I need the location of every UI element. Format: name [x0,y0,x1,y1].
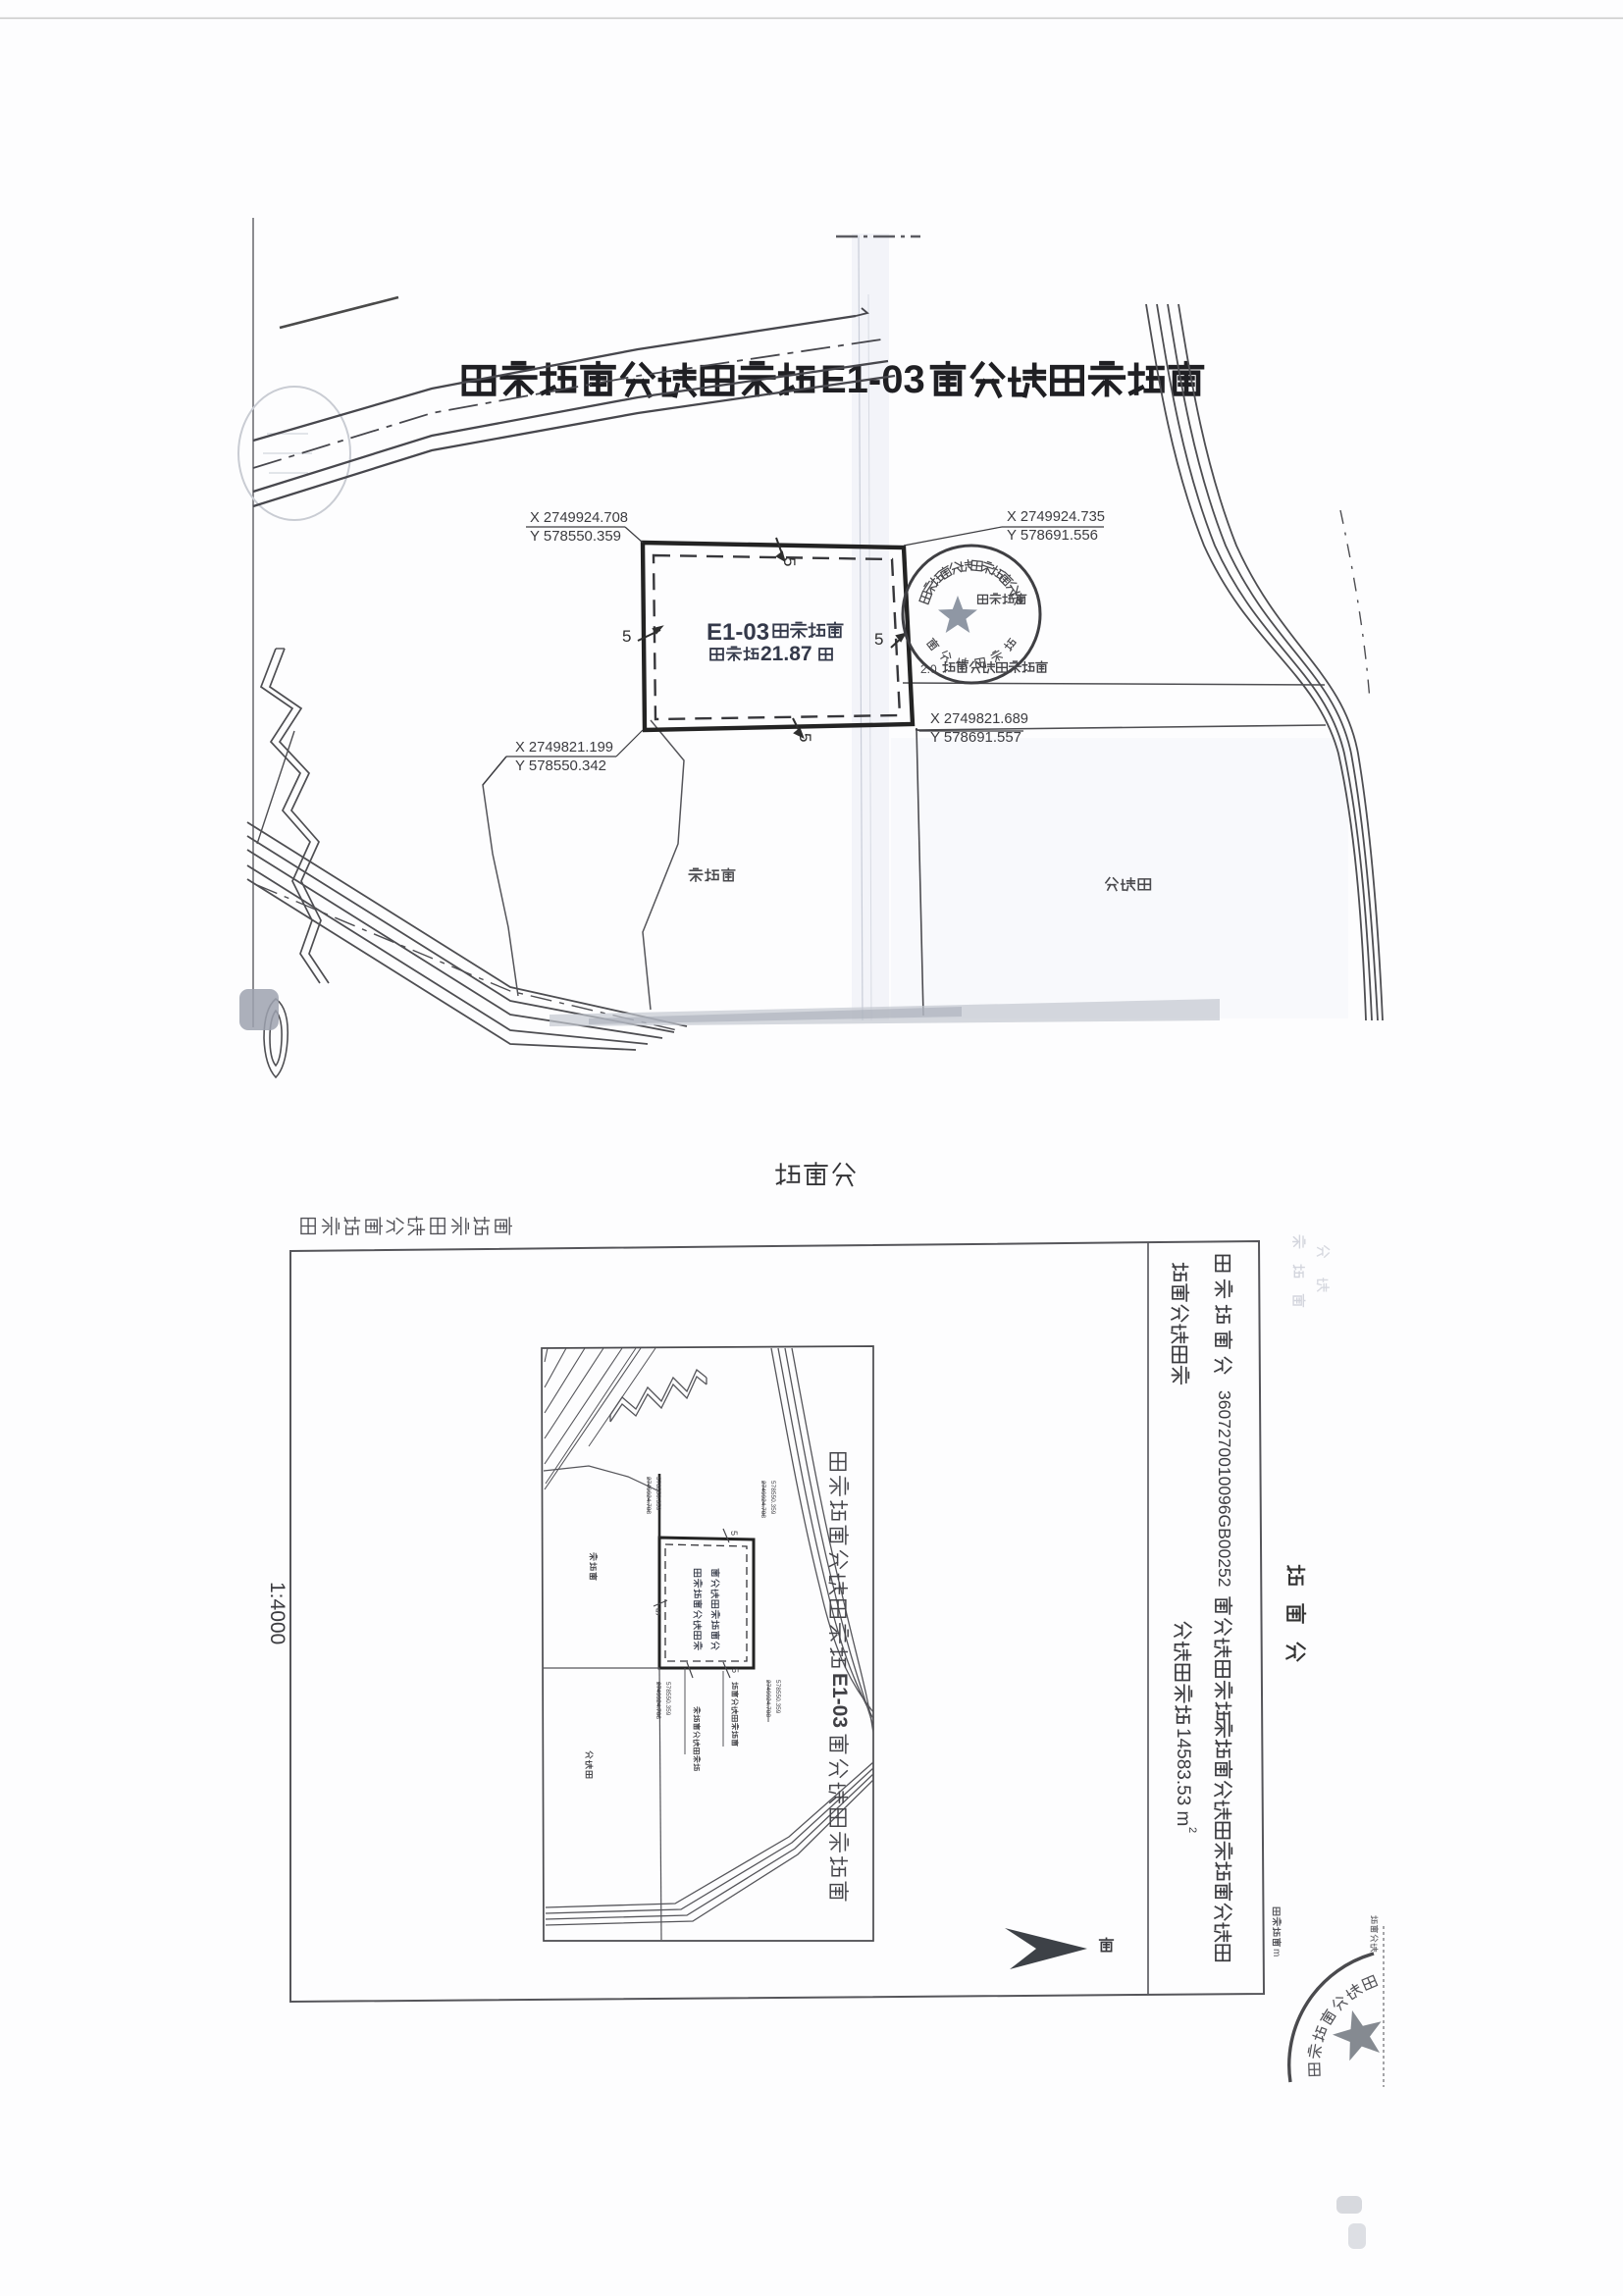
svg-text:2: 2 [1186,1827,1198,1833]
svg-text:5: 5 [729,1531,739,1536]
svg-text:578550.359: 578550.359 [654,1477,661,1511]
svg-text:Y 578550.342: Y 578550.342 [515,757,606,774]
svg-text:5: 5 [796,733,814,742]
svg-text:X 2749821.689: X 2749821.689 [930,710,1028,727]
svg-text:m: m [1271,1949,1282,1957]
svg-text:E1-03: E1-03 [707,619,769,646]
svg-text:2749924.708: 2749924.708 [764,1680,771,1717]
svg-text:Y 578691.557: Y 578691.557 [930,729,1021,746]
svg-text:2749924.708: 2749924.708 [759,1481,766,1518]
svg-text:5: 5 [780,557,799,566]
svg-text:21.87: 21.87 [760,643,812,665]
svg-text:Y 578691.556: Y 578691.556 [1007,527,1098,544]
svg-text:14583.53 m: 14583.53 m [1173,1728,1193,1826]
svg-text:Y 578550.359: Y 578550.359 [530,528,621,545]
svg-text:2749924.708: 2749924.708 [645,1477,652,1514]
svg-text:578550.359: 578550.359 [774,1680,781,1714]
svg-text:X 2749821.199: X 2749821.199 [515,739,613,756]
svg-text:578550.359: 578550.359 [664,1682,671,1716]
svg-text:E1-03: E1-03 [828,1673,851,1728]
svg-text:5: 5 [730,1668,740,1673]
svg-text:5: 5 [622,627,631,646]
svg-text:2.0: 2.0 [920,662,937,676]
svg-text:578550.359: 578550.359 [769,1481,776,1515]
svg-text:X 2749924.708: X 2749924.708 [530,509,628,526]
svg-text:5: 5 [655,1607,660,1617]
svg-text:1:4000: 1:4000 [266,1582,288,1644]
svg-text:5: 5 [874,630,883,649]
svg-text:X 2749924.735: X 2749924.735 [1007,508,1105,525]
svg-text:2749924.708: 2749924.708 [654,1682,661,1719]
svg-text:3607270010096GB00252: 3607270010096GB00252 [1215,1390,1234,1587]
